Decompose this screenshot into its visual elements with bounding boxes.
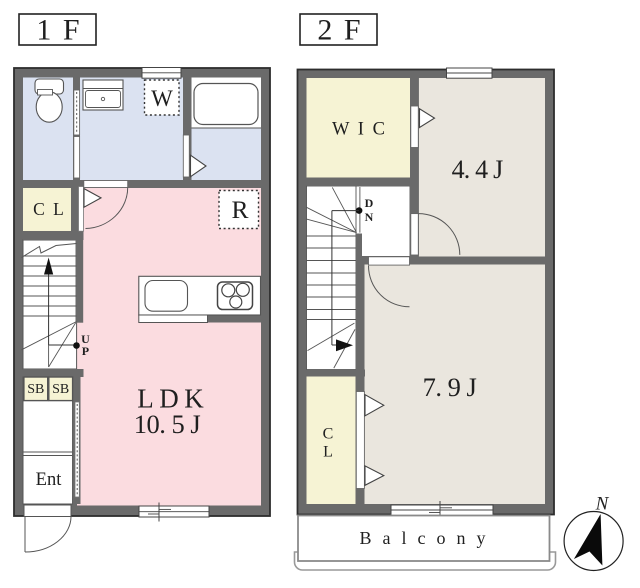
svg-text:1 F: 1 F (36, 14, 81, 47)
svg-text:Balcony: Balcony (360, 528, 497, 548)
svg-text:D: D (365, 196, 374, 210)
svg-text:C: C (323, 426, 334, 443)
svg-text:10. 5 J: 10. 5 J (134, 409, 201, 439)
svg-text:R: R (231, 195, 248, 224)
svg-text:P: P (82, 344, 89, 358)
svg-text:W I C: W I C (332, 120, 387, 140)
svg-text:C L: C L (33, 199, 66, 219)
svg-text:SB: SB (27, 382, 44, 397)
svg-text:2 F: 2 F (317, 14, 362, 47)
svg-text:7. 9 J: 7. 9 J (423, 372, 477, 402)
svg-text:L: L (323, 444, 333, 461)
svg-text:N: N (595, 494, 610, 515)
svg-text:4. 4 J: 4. 4 J (452, 155, 504, 184)
svg-text:Ent: Ent (36, 470, 63, 490)
svg-text:SB: SB (52, 382, 69, 397)
svg-text:W: W (151, 86, 173, 111)
svg-text:N: N (365, 210, 374, 224)
